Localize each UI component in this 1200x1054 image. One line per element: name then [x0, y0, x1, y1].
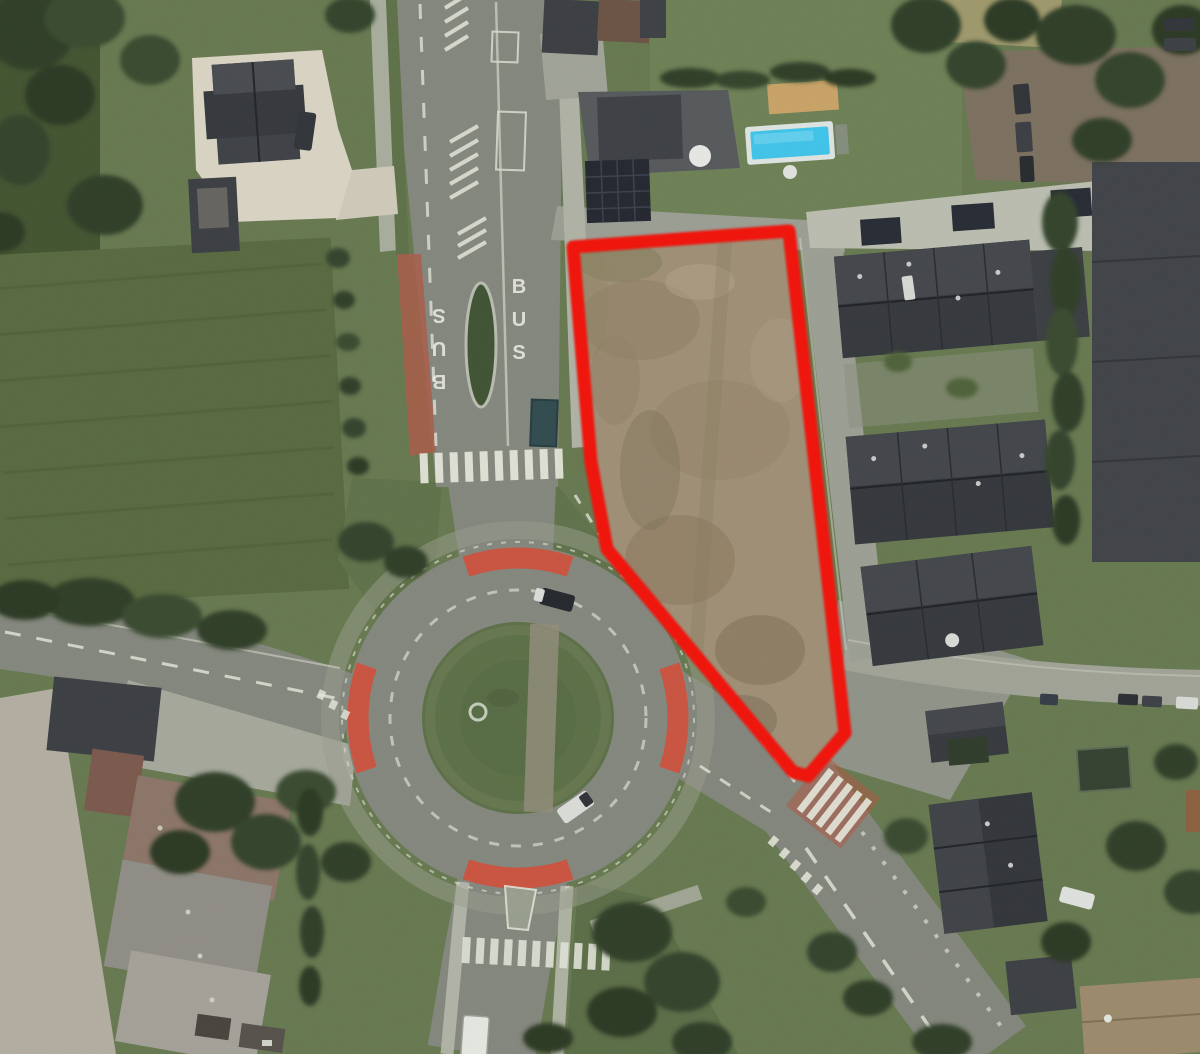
satellite-map: BUS BUS	[0, 0, 1200, 1054]
bus-lane-marking-east: BUS	[507, 276, 530, 368]
bus-lane-marking-west: BUS	[428, 292, 451, 392]
satellite-map-canvas	[0, 0, 1200, 1054]
